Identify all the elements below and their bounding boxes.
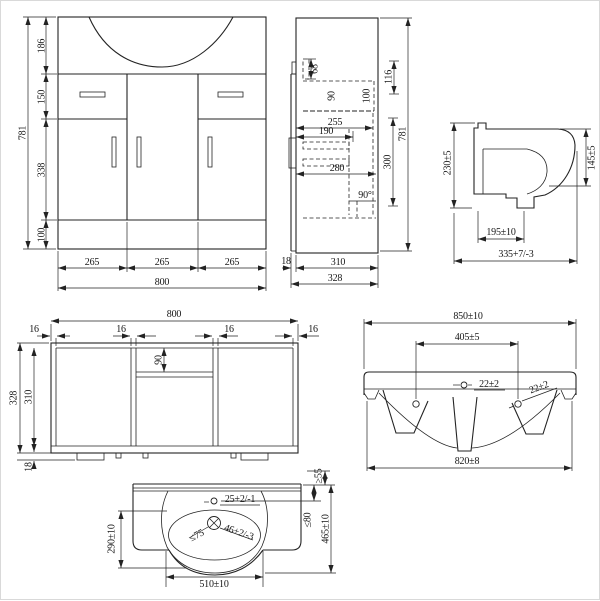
waste-hole [208, 517, 221, 530]
basin-drain-stub [453, 397, 477, 451]
dim-plan-total-width: 800 [167, 309, 182, 320]
counter-right-edge [263, 484, 301, 550]
dim-plan-16-2: 16 [116, 324, 126, 335]
dim-plan-16-4: 16 [308, 324, 318, 335]
dim-front-seg-100: 100 [36, 228, 47, 243]
dim-side-190: 190 [319, 126, 334, 137]
dim-plan-16-1: 16 [29, 324, 39, 335]
dim-plan-328: 328 [8, 391, 19, 406]
dim-front-col-2: 265 [155, 257, 170, 268]
dim-side-310: 310 [331, 257, 346, 268]
dim-side-280: 280 [330, 163, 345, 174]
dim-tap-hole-size: 25+2/-1 [225, 494, 256, 505]
basin-profile [474, 123, 575, 208]
dim-front-seg-186: 186 [36, 39, 47, 54]
dim-bowl-depth: 290±10 [106, 524, 117, 553]
dim-front-total-height: 781 [17, 126, 28, 141]
dim-front-seg-338: 338 [36, 163, 47, 178]
basin-plan-view: 25+2/-1 ≤75 46+2/-3 290±10 510±10 ≥55 ≤8… [106, 468, 336, 590]
dim-plan-18: 18 [23, 462, 34, 472]
plan-outline [51, 343, 298, 453]
drawing-canvas: 781 186 150 338 100 265 265 265 800 [0, 0, 600, 600]
front-dimension-lines [23, 17, 266, 291]
cabinet-front-view: 781 186 150 338 100 265 265 265 800 [17, 17, 266, 291]
dim-plan-16-3: 16 [224, 324, 234, 335]
dim-basin-front-total-width: 850±10 [453, 311, 482, 322]
basin-side-view: 230±5 145±5 195±10 335+7/-3 [442, 123, 597, 264]
cabinet-foot [241, 453, 268, 460]
door-handle [112, 137, 116, 167]
dim-basin-335: 335+7/-3 [498, 249, 533, 260]
vanity-technical-drawing: 781 186 150 338 100 265 265 265 800 [1, 1, 600, 601]
dim-front-col-3: 265 [225, 257, 240, 268]
door-handle [137, 137, 141, 167]
tap-hole [211, 498, 217, 504]
drawer-handle [218, 92, 243, 97]
basin-side-dimension-lines [450, 123, 591, 264]
dim-side-68: 68 [309, 64, 320, 74]
side-dimension-lines [282, 18, 412, 288]
cabinet-foot [77, 453, 104, 460]
cabinet-outline [58, 17, 266, 249]
dim-front-col-1: 265 [85, 257, 100, 268]
dim-basin-back-height: 230±5 [442, 151, 453, 176]
dim-bowl-width: 510±10 [199, 579, 228, 590]
drawer-handle [80, 92, 105, 97]
dim-overflow: 46+2/-3 [223, 522, 255, 542]
dim-side-116: 116 [383, 70, 394, 84]
cabinet-side-view: 68 90 100 116 255 190 280 90° 300 781 18… [281, 18, 412, 288]
dim-tap-setback: ≤80 [302, 512, 313, 527]
dim-basin-front-height: 145±5 [586, 146, 597, 171]
dim-tap-hole-dia-2: 22±2 [528, 379, 551, 396]
dim-side-18: 18 [281, 256, 291, 267]
cabinet-plan-view: 800 16 16 16 16 90 328 310 18 [8, 309, 319, 472]
dim-plan-310: 310 [23, 390, 34, 405]
dim-front-total-width: 800 [155, 277, 170, 288]
dim-side-90: 90 [326, 91, 337, 101]
dim-back-ledge: ≥55 [313, 468, 324, 483]
dim-side-total-height: 781 [397, 127, 408, 142]
dim-side-100: 100 [361, 89, 372, 104]
dim-tap-hole-dia-1: 22±2 [479, 379, 499, 390]
tap-hole-right [515, 401, 521, 407]
basin-left-leg [383, 390, 428, 433]
dim-side-angle: 90° [358, 190, 372, 201]
dim-basin-tap-centres: 405±5 [455, 332, 480, 343]
dim-side-328: 328 [328, 273, 343, 284]
dim-basin-195: 195±10 [486, 227, 515, 238]
dim-front-seg-150: 150 [36, 90, 47, 105]
dim-side-300: 300 [382, 155, 393, 170]
side-door-handle [289, 138, 296, 168]
dim-basin-base-width: 820±8 [455, 456, 480, 467]
counter-left-edge [133, 484, 169, 550]
door-handle [208, 137, 212, 167]
dim-plan-shelf-90: 90 [153, 355, 164, 365]
dim-total-depth: 465±10 [320, 514, 331, 543]
tap-hole-left [413, 401, 419, 407]
basin-front-view: 850±10 405±5 22±2 22±2 820±8 [364, 311, 576, 471]
basin-cutout-curve [89, 17, 233, 67]
